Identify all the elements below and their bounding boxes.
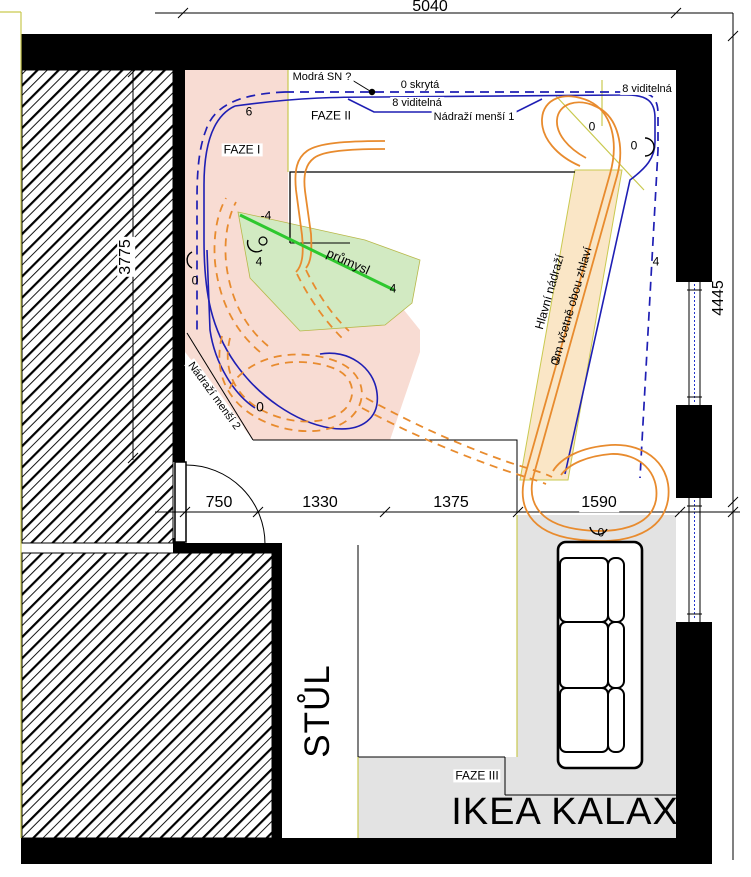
dim-750: 750 [206,494,233,512]
label-nadrazi1: Nádraží menší 1 [432,111,517,123]
mark-0-loop2: 0 [256,399,264,414]
mark-minus4: -4 [261,209,272,222]
dim-1330: 1330 [302,494,338,512]
mark-0-left: 0 [192,274,199,287]
floor-plan-canvas: 5040 3775 4445 750 1330 1375 1590 Modrá … [0,0,751,877]
sofa [558,542,642,768]
dim-top: 5040 [412,0,448,16]
dim-1375: 1375 [433,494,469,512]
dim-right: 4445 [710,280,728,316]
modra-sn-leader [352,80,370,91]
hatched-wall-lower-left [22,553,272,838]
plan-drawing [0,0,751,877]
dim-left: 3775 [117,237,135,277]
modra-sn-dot [369,89,375,95]
window-lower [676,498,712,622]
label-8-viditelna-mid: 8 viditelná [390,97,444,109]
label-ikea-kalax: IKEA KALAX [451,792,679,834]
hatched-wall-upper-left [22,70,173,543]
mark-0-sofa: 0 [598,526,605,539]
mark-4-left: 4 [256,255,263,268]
label-faze3: FAZE III [453,769,500,782]
mark-0-topright-2: 0 [631,139,638,152]
mark-0-topright-1: 0 [589,120,596,133]
label-modra-sn: Modrá SN ? [291,71,354,83]
label-faze2: FAZE II [309,109,353,122]
label-stul: STŮL [299,664,338,757]
label-0-skryta: 0 skrytá [399,79,442,91]
label-8-viditelna-right: 8 viditelná [620,83,674,95]
mark-6: 6 [246,105,253,118]
label-faze1: FAZE I [222,143,263,156]
dim-1590: 1590 [579,494,619,512]
mark-4-right: 4 [653,255,660,268]
window-upper [676,282,712,405]
mark-4-green: 4 [390,282,397,295]
